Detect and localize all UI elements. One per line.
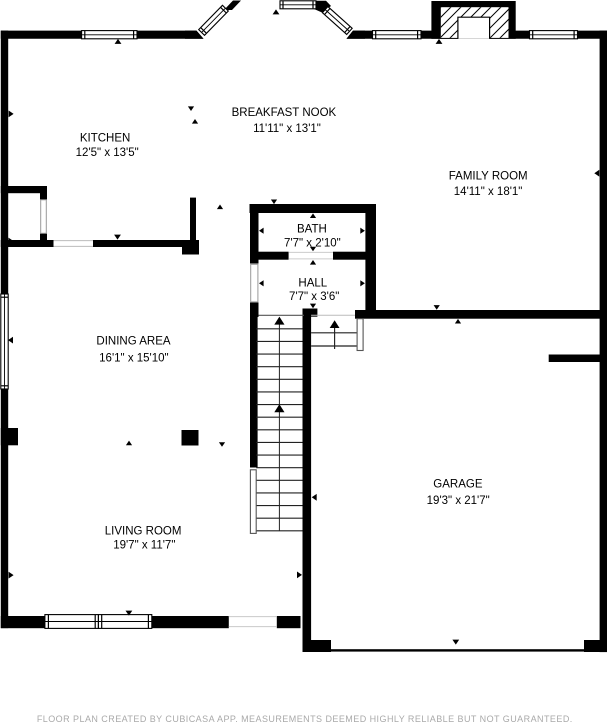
svg-text:FAMILY ROOM: FAMILY ROOM <box>449 170 528 182</box>
svg-text:7'7" x 3'6": 7'7" x 3'6" <box>289 291 339 303</box>
svg-text:16'1" x 15'10": 16'1" x 15'10" <box>99 353 168 365</box>
svg-text:7'7" x 2'10": 7'7" x 2'10" <box>284 237 341 249</box>
svg-text:19'3" x 21'7": 19'3" x 21'7" <box>427 495 490 507</box>
svg-text:11'11" x 13'1": 11'11" x 13'1" <box>253 123 321 135</box>
svg-text:DINING AREA: DINING AREA <box>96 335 170 347</box>
svg-text:12'5" x 13'5": 12'5" x 13'5" <box>76 147 139 159</box>
svg-text:HALL: HALL <box>298 278 327 290</box>
svg-text:14'11" x 18'1": 14'11" x 18'1" <box>454 186 523 198</box>
svg-text:LIVING ROOM: LIVING ROOM <box>105 525 182 537</box>
svg-text:BATH: BATH <box>297 224 327 236</box>
svg-text:GARAGE: GARAGE <box>433 479 483 491</box>
svg-text:KITCHEN: KITCHEN <box>80 133 130 145</box>
svg-text:19'7" x 11'7": 19'7" x 11'7" <box>113 540 175 552</box>
svg-text:FLOOR PLAN CREATED BY CUBICASA: FLOOR PLAN CREATED BY CUBICASA APP. MEAS… <box>37 714 573 724</box>
svg-text:BREAKFAST NOOK: BREAKFAST NOOK <box>232 107 337 119</box>
